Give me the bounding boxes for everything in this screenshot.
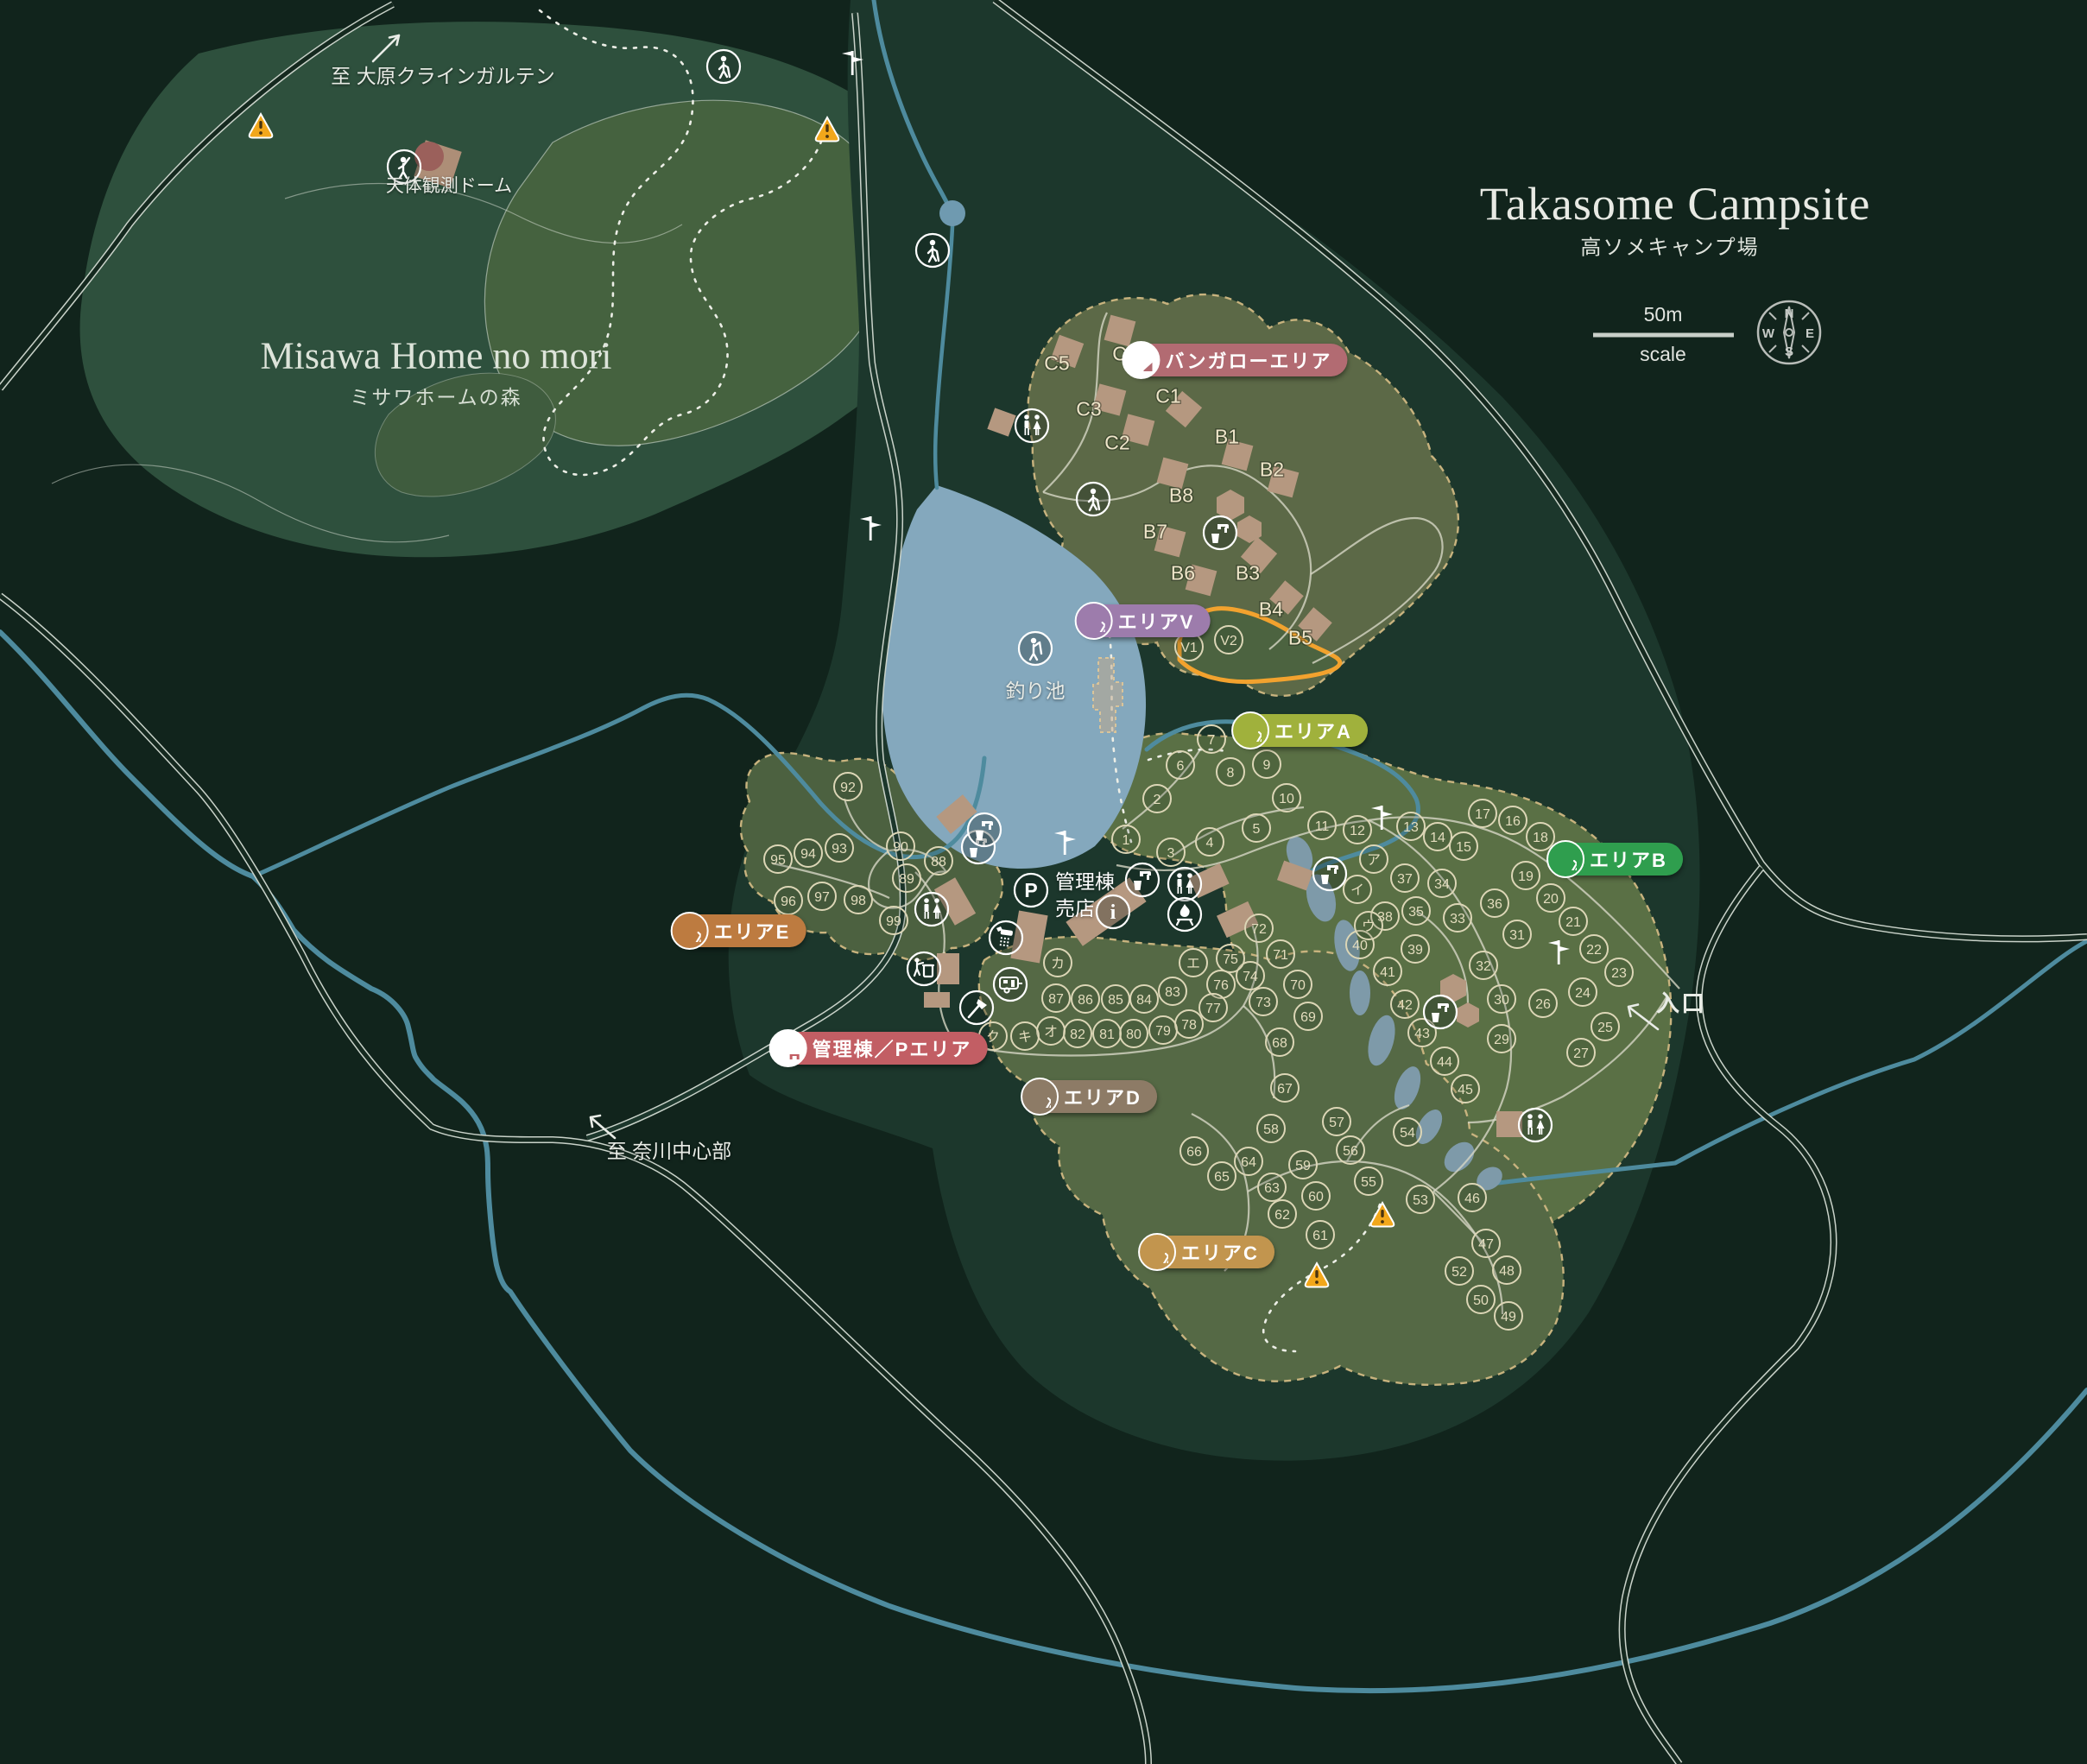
svg-text:58: 58 — [1263, 1122, 1279, 1137]
site-58: 58 — [1257, 1115, 1285, 1142]
svg-text:78: 78 — [1181, 1018, 1197, 1033]
svg-text:66: 66 — [1186, 1145, 1202, 1160]
map-title-ja: 高ソメキャンプ場 — [1580, 231, 1759, 261]
svg-text:15: 15 — [1456, 840, 1471, 855]
site-12: 12 — [1344, 816, 1371, 844]
site-66: 66 — [1180, 1137, 1208, 1165]
svg-text:34: 34 — [1434, 877, 1450, 892]
compass-e: E — [1806, 326, 1814, 341]
site-70: 70 — [1284, 971, 1312, 998]
badge-area-d[interactable]: エリアD — [1026, 1080, 1157, 1113]
svg-text:45: 45 — [1458, 1083, 1473, 1097]
svg-text:V2: V2 — [1220, 634, 1237, 648]
site-94: 94 — [794, 839, 822, 867]
svg-text:68: 68 — [1272, 1036, 1287, 1051]
svg-text:44: 44 — [1437, 1055, 1452, 1070]
svg-text:3: 3 — [1167, 846, 1175, 861]
badge-area-a[interactable]: エリアA — [1236, 714, 1368, 747]
svg-text:92: 92 — [840, 781, 856, 795]
site-82: 82 — [1064, 1020, 1091, 1047]
svg-text:48: 48 — [1499, 1264, 1515, 1279]
bungalow-C2: C2 — [1104, 431, 1129, 453]
svg-text:10: 10 — [1279, 792, 1294, 806]
svg-text:25: 25 — [1597, 1021, 1613, 1035]
site-27: 27 — [1567, 1039, 1595, 1066]
svg-text:95: 95 — [770, 853, 786, 868]
site-54: 54 — [1394, 1118, 1421, 1146]
hiker-icon — [1077, 483, 1110, 515]
svg-text:エ: エ — [1186, 957, 1200, 971]
svg-text:11: 11 — [1315, 819, 1330, 834]
svg-text:59: 59 — [1295, 1159, 1311, 1173]
svg-text:C1: C1 — [1155, 384, 1180, 407]
scale-caption: scale — [1640, 343, 1686, 365]
bungalow-B4: B4 — [1259, 597, 1283, 620]
site-49: 49 — [1495, 1302, 1522, 1330]
car-icon — [769, 1029, 807, 1067]
svg-text:9: 9 — [1263, 758, 1271, 773]
water-tap-icon — [1204, 516, 1236, 549]
site-44: 44 — [1431, 1047, 1458, 1075]
svg-text:98: 98 — [851, 894, 866, 908]
svg-text:46: 46 — [1464, 1192, 1480, 1206]
badge-label: エリアE — [714, 917, 791, 945]
site-97: 97 — [808, 882, 836, 910]
svg-text:V1: V1 — [1180, 641, 1198, 655]
site-55: 55 — [1355, 1167, 1382, 1195]
svg-text:6: 6 — [1177, 759, 1185, 774]
entrance-label[interactable]: 入口 — [1656, 985, 1706, 1019]
svg-text:90: 90 — [893, 840, 908, 855]
site-32: 32 — [1470, 952, 1497, 979]
site-7: 7 — [1198, 725, 1225, 753]
site-65: 65 — [1208, 1162, 1236, 1190]
hiker-icon — [707, 50, 740, 83]
compass-w: W — [1762, 326, 1775, 341]
site-57: 57 — [1323, 1108, 1350, 1135]
svg-text:62: 62 — [1274, 1208, 1290, 1223]
tent-icon — [1546, 840, 1584, 878]
fire-icon — [1168, 898, 1201, 931]
badge-area-b[interactable]: エリアB — [1552, 843, 1683, 876]
site-45: 45 — [1451, 1075, 1479, 1103]
svg-text:93: 93 — [832, 842, 847, 857]
svg-text:20: 20 — [1543, 892, 1559, 907]
site-5: 5 — [1243, 814, 1270, 842]
site-77: 77 — [1199, 994, 1227, 1021]
svg-text:ア: ア — [1367, 853, 1381, 868]
svg-text:80: 80 — [1126, 1027, 1142, 1042]
map-title: Takasome Campsite — [1480, 177, 1871, 231]
svg-text:69: 69 — [1300, 1010, 1316, 1025]
svg-text:85: 85 — [1108, 993, 1123, 1008]
site-92: 92 — [834, 773, 862, 800]
site-24: 24 — [1569, 978, 1597, 1006]
site-86: 86 — [1072, 985, 1099, 1013]
bungalow-C3: C3 — [1076, 397, 1101, 420]
bungalow-C5: C5 — [1044, 351, 1069, 374]
site-80: 80 — [1120, 1020, 1148, 1047]
site-8: 8 — [1217, 758, 1244, 786]
site-39: 39 — [1401, 935, 1429, 963]
small-pond — [939, 200, 965, 226]
site-68: 68 — [1266, 1028, 1293, 1056]
svg-text:32: 32 — [1476, 959, 1491, 974]
site-6: 6 — [1167, 751, 1194, 779]
badge-area-e[interactable]: エリアE — [676, 914, 806, 947]
fishing-icon — [1019, 632, 1052, 665]
site-ア: ア — [1360, 845, 1388, 873]
compass-n: N — [1785, 307, 1794, 321]
site-88: 88 — [925, 847, 952, 875]
svg-text:B8: B8 — [1169, 484, 1193, 506]
svg-text:96: 96 — [781, 895, 796, 909]
site-29: 29 — [1488, 1025, 1515, 1053]
svg-text:72: 72 — [1251, 922, 1267, 937]
site-9: 9 — [1253, 750, 1281, 778]
tent-icon — [1075, 602, 1113, 640]
svg-text:B6: B6 — [1171, 561, 1195, 584]
site-36: 36 — [1481, 889, 1508, 917]
tent-icon — [671, 912, 709, 950]
svg-text:77: 77 — [1205, 1002, 1221, 1016]
site-78: 78 — [1175, 1010, 1203, 1038]
toilet-icon — [915, 893, 948, 926]
svg-text:B4: B4 — [1259, 597, 1283, 620]
svg-text:87: 87 — [1048, 992, 1064, 1007]
site-30: 30 — [1488, 985, 1515, 1013]
svg-text:21: 21 — [1565, 915, 1581, 930]
badge-label: エリアA — [1274, 717, 1352, 744]
to-ohara-label[interactable]: 至 大原クラインガルテン — [331, 60, 554, 89]
toilet-icon — [1519, 1109, 1552, 1141]
campsite-map: P i — [0, 0, 2087, 1764]
site-60: 60 — [1302, 1182, 1330, 1210]
badge-bungalow-area[interactable]: バンガローエリア — [1127, 344, 1347, 376]
site-キ: キ — [1011, 1022, 1039, 1050]
shower-icon — [990, 921, 1022, 954]
svg-text:41: 41 — [1380, 965, 1395, 980]
svg-text:37: 37 — [1397, 872, 1413, 887]
site-95: 95 — [764, 845, 792, 873]
svg-text:27: 27 — [1573, 1046, 1589, 1061]
svg-text:39: 39 — [1407, 943, 1423, 958]
svg-text:54: 54 — [1400, 1126, 1415, 1141]
bungalow-B7: B7 — [1143, 520, 1167, 542]
to-nagawa-label[interactable]: 至 奈川中心部 — [607, 1135, 731, 1164]
svg-text:55: 55 — [1361, 1175, 1376, 1190]
svg-text:B1: B1 — [1215, 425, 1239, 447]
tent-icon — [1021, 1078, 1059, 1116]
site-52: 52 — [1445, 1257, 1473, 1285]
site-96: 96 — [775, 887, 802, 914]
svg-text:74: 74 — [1243, 970, 1258, 984]
site-90: 90 — [887, 832, 914, 860]
site-19: 19 — [1512, 862, 1540, 889]
pond-label: 釣り池 — [1006, 674, 1066, 704]
svg-text:ウ: ウ — [1362, 919, 1376, 934]
svg-text:89: 89 — [899, 872, 914, 887]
svg-text:イ: イ — [1350, 883, 1364, 898]
svg-text:24: 24 — [1575, 986, 1591, 1001]
site-99: 99 — [880, 907, 908, 934]
site-33: 33 — [1444, 904, 1471, 932]
site-71: 71 — [1267, 940, 1294, 968]
svg-text:83: 83 — [1165, 985, 1180, 1000]
site-16: 16 — [1499, 806, 1527, 834]
site-89: 89 — [893, 864, 920, 892]
caravan-icon — [994, 968, 1027, 1001]
svg-text:47: 47 — [1478, 1237, 1494, 1252]
svg-text:キ: キ — [1018, 1030, 1032, 1045]
svg-text:65: 65 — [1214, 1170, 1230, 1185]
svg-text:30: 30 — [1494, 993, 1509, 1008]
svg-text:43: 43 — [1414, 1027, 1430, 1041]
water-tap-icon — [968, 813, 1001, 846]
tent-icon — [1138, 1233, 1176, 1271]
svg-text:B7: B7 — [1143, 520, 1167, 542]
svg-text:79: 79 — [1155, 1024, 1171, 1039]
badge-label: 管理棟／Pエリア — [813, 1034, 972, 1062]
svg-text:70: 70 — [1290, 978, 1306, 993]
water-tap-icon — [1126, 863, 1159, 896]
svg-text:82: 82 — [1070, 1027, 1085, 1042]
site-37: 37 — [1391, 864, 1419, 892]
bungalow-B6: B6 — [1171, 561, 1195, 584]
bungalow-B1: B1 — [1215, 425, 1239, 447]
svg-text:4: 4 — [1206, 836, 1214, 850]
hiker-icon — [916, 234, 949, 267]
badge-label: エリアD — [1064, 1083, 1142, 1110]
site-56: 56 — [1337, 1136, 1364, 1164]
site-カ: カ — [1044, 949, 1072, 977]
svg-text:C3: C3 — [1076, 397, 1101, 420]
svg-text:8: 8 — [1227, 766, 1235, 781]
svg-text:42: 42 — [1397, 998, 1413, 1013]
site-23: 23 — [1605, 958, 1633, 986]
bungalow-B3: B3 — [1236, 561, 1260, 584]
parking-icon — [1015, 874, 1047, 907]
svg-text:56: 56 — [1343, 1144, 1358, 1159]
site-11: 11 — [1308, 812, 1336, 839]
svg-text:40: 40 — [1352, 939, 1368, 953]
house-icon — [1122, 341, 1160, 379]
site-87: 87 — [1042, 984, 1070, 1012]
svg-text:63: 63 — [1264, 1181, 1280, 1196]
site-83: 83 — [1159, 977, 1186, 1005]
office-label: 管理棟 売店 — [1055, 869, 1115, 922]
svg-text:97: 97 — [814, 890, 830, 905]
svg-text:5: 5 — [1253, 822, 1261, 837]
svg-text:カ: カ — [1051, 957, 1065, 971]
svg-text:B2: B2 — [1260, 458, 1284, 480]
site-53: 53 — [1407, 1185, 1434, 1213]
svg-text:29: 29 — [1494, 1033, 1509, 1047]
svg-text:60: 60 — [1308, 1190, 1324, 1204]
svg-text:76: 76 — [1213, 978, 1229, 993]
svg-text:57: 57 — [1329, 1116, 1344, 1130]
svg-text:36: 36 — [1487, 897, 1502, 912]
svg-text:84: 84 — [1136, 993, 1152, 1008]
badge-label: エリアC — [1181, 1238, 1259, 1266]
site-73: 73 — [1249, 988, 1277, 1015]
site-14: 14 — [1424, 823, 1451, 850]
site-67: 67 — [1271, 1074, 1299, 1102]
tent-icon — [1231, 711, 1269, 749]
svg-text:81: 81 — [1099, 1027, 1115, 1042]
svg-text:C2: C2 — [1104, 431, 1129, 453]
site-1: 1 — [1112, 825, 1140, 853]
site-2: 2 — [1143, 785, 1171, 812]
svg-text:18: 18 — [1533, 831, 1548, 845]
bungalow-B2: B2 — [1260, 458, 1284, 480]
svg-text:99: 99 — [886, 914, 901, 929]
svg-text:31: 31 — [1509, 928, 1525, 943]
site-V2: V2 — [1215, 626, 1243, 654]
site-34: 34 — [1428, 869, 1456, 897]
svg-text:35: 35 — [1408, 905, 1424, 920]
site-72: 72 — [1245, 914, 1273, 942]
badge-mgmt-p-area[interactable]: 管理棟／Pエリア — [775, 1032, 988, 1065]
axe-icon — [960, 991, 993, 1024]
site-46: 46 — [1458, 1184, 1486, 1211]
scale-distance: 50m — [1644, 303, 1683, 326]
svg-text:ク: ク — [986, 1029, 1000, 1045]
svg-text:13: 13 — [1403, 820, 1419, 835]
svg-text:94: 94 — [800, 847, 816, 862]
svg-text:33: 33 — [1450, 912, 1465, 926]
site-48: 48 — [1493, 1256, 1521, 1284]
site-75: 75 — [1217, 945, 1244, 972]
svg-text:49: 49 — [1501, 1310, 1516, 1325]
forest-title: Misawa Home no mori — [261, 334, 612, 378]
site-イ: イ — [1344, 876, 1371, 903]
svg-text:14: 14 — [1430, 831, 1445, 845]
site-62: 62 — [1268, 1200, 1296, 1228]
svg-text:23: 23 — [1611, 966, 1627, 981]
svg-text:61: 61 — [1312, 1229, 1328, 1243]
svg-text:16: 16 — [1505, 814, 1521, 829]
svg-text:B3: B3 — [1236, 561, 1260, 584]
office-line1: 管理棟 — [1055, 869, 1115, 895]
svg-text:50: 50 — [1473, 1293, 1489, 1308]
svg-text:22: 22 — [1586, 943, 1602, 958]
svg-text:64: 64 — [1241, 1155, 1256, 1170]
forest-subtitle: ミサワホームの森 — [350, 381, 522, 410]
site-50: 50 — [1467, 1286, 1495, 1313]
site-20: 20 — [1537, 884, 1565, 912]
svg-text:86: 86 — [1078, 993, 1093, 1008]
site-42: 42 — [1391, 990, 1419, 1018]
site-93: 93 — [825, 834, 853, 862]
site-10: 10 — [1273, 784, 1300, 812]
site-オ: オ — [1037, 1017, 1065, 1045]
svg-text:53: 53 — [1413, 1193, 1428, 1208]
site-69: 69 — [1294, 1002, 1322, 1030]
map-canvas: P i — [0, 0, 2087, 1764]
svg-text:71: 71 — [1273, 948, 1288, 963]
badge-label: バンガローエリア — [1165, 346, 1331, 374]
site-64: 64 — [1235, 1148, 1262, 1175]
svg-text:1: 1 — [1123, 833, 1130, 848]
svg-text:オ: オ — [1044, 1025, 1058, 1040]
svg-text:B5: B5 — [1288, 626, 1312, 648]
site-41: 41 — [1374, 958, 1401, 985]
site-26: 26 — [1529, 989, 1557, 1017]
svg-text:17: 17 — [1475, 807, 1490, 822]
bungalow-B8: B8 — [1169, 484, 1193, 506]
site-98: 98 — [844, 886, 872, 914]
svg-text:88: 88 — [931, 855, 946, 869]
bungalow-B5: B5 — [1288, 626, 1312, 648]
site-79: 79 — [1149, 1016, 1177, 1044]
svg-text:19: 19 — [1518, 869, 1534, 884]
svg-text:73: 73 — [1255, 996, 1271, 1010]
site-63: 63 — [1258, 1173, 1286, 1201]
svg-text:C5: C5 — [1044, 351, 1069, 374]
site-85: 85 — [1102, 985, 1129, 1013]
site-61: 61 — [1306, 1221, 1334, 1249]
trash-icon — [908, 952, 940, 985]
toilet-icon — [1015, 409, 1048, 442]
site-13: 13 — [1397, 812, 1425, 840]
site-47: 47 — [1472, 1230, 1500, 1257]
bungalow-C1: C1 — [1155, 384, 1180, 407]
site-35: 35 — [1402, 897, 1430, 925]
site-31: 31 — [1503, 920, 1531, 948]
site-22: 22 — [1580, 935, 1608, 963]
svg-text:52: 52 — [1451, 1265, 1467, 1280]
compass-s: S — [1785, 345, 1793, 359]
site-21: 21 — [1559, 907, 1587, 935]
svg-text:2: 2 — [1154, 793, 1161, 807]
site-ウ: ウ — [1355, 912, 1382, 939]
observatory-label: 天体観測ドーム — [386, 172, 512, 198]
svg-text:26: 26 — [1535, 997, 1551, 1012]
water-tap-icon — [1313, 857, 1346, 890]
site-エ: エ — [1179, 949, 1207, 977]
badge-label: エリアB — [1590, 845, 1667, 873]
svg-text:75: 75 — [1223, 952, 1238, 967]
svg-text:7: 7 — [1208, 733, 1216, 748]
badge-area-v[interactable]: エリアV — [1080, 604, 1211, 637]
site-25: 25 — [1591, 1013, 1619, 1040]
site-3: 3 — [1157, 838, 1185, 866]
office-line2: 売店 — [1055, 895, 1115, 922]
svg-text:12: 12 — [1350, 824, 1365, 838]
water-tap-icon — [1424, 996, 1457, 1028]
badge-area-c[interactable]: エリアC — [1143, 1236, 1274, 1268]
site-4: 4 — [1196, 828, 1224, 856]
site-17: 17 — [1469, 800, 1496, 827]
badge-label: エリアV — [1118, 607, 1195, 635]
site-81: 81 — [1093, 1020, 1121, 1047]
toilet-icon — [1168, 868, 1201, 901]
site-59: 59 — [1289, 1151, 1317, 1179]
site-15: 15 — [1450, 832, 1477, 860]
svg-text:67: 67 — [1277, 1082, 1293, 1097]
site-84: 84 — [1130, 985, 1158, 1013]
